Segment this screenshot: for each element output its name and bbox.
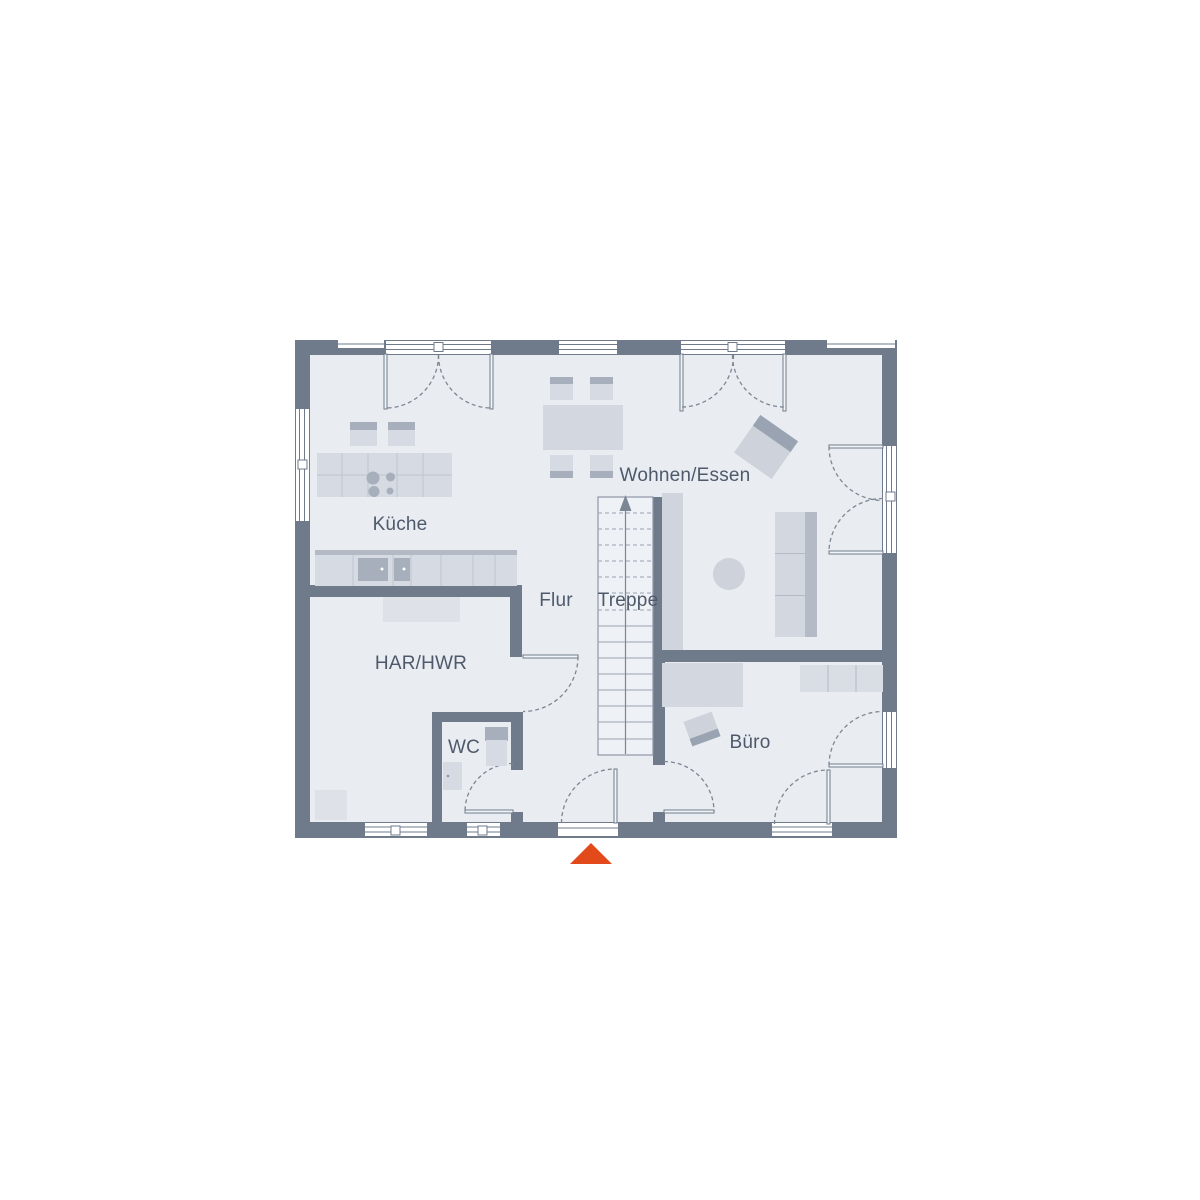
room-label-har-hwr: HAR/HWR xyxy=(375,653,467,675)
room-label-flur: Flur xyxy=(539,590,573,612)
window-handle-icon xyxy=(478,826,487,835)
har-door-leaf xyxy=(523,655,578,658)
door-leaf xyxy=(829,551,883,554)
window-handle-icon xyxy=(728,343,737,352)
door-leaf xyxy=(490,354,493,409)
wall-har-flur xyxy=(510,597,522,657)
floor-plan-drawing xyxy=(295,340,897,838)
window-wc-bottom xyxy=(467,823,500,836)
kitchen-island xyxy=(317,453,452,497)
wc-door-leaf xyxy=(465,810,513,813)
wall-wc-top xyxy=(432,712,523,722)
entrance-door-opening xyxy=(558,823,618,836)
oven xyxy=(358,558,388,581)
sofa xyxy=(775,512,817,637)
sideboard xyxy=(662,493,683,650)
window-sill-top-right xyxy=(827,340,895,348)
room-label-buero: Büro xyxy=(730,732,771,754)
terrace-door-buero-right xyxy=(883,712,896,768)
window-handle-icon xyxy=(298,460,307,469)
door-leaf xyxy=(827,770,830,824)
french-door-living-top xyxy=(680,341,786,354)
entrance-marker-icon xyxy=(570,843,612,864)
dining-table xyxy=(543,405,623,450)
staircase xyxy=(598,495,653,755)
window-kitchen-left xyxy=(296,408,309,522)
door-leaf xyxy=(829,764,883,767)
window-sill-top-left xyxy=(338,340,384,348)
door-leaf xyxy=(829,445,883,448)
room-label-wc: WC xyxy=(448,737,480,759)
buero-door-leaf xyxy=(664,810,714,813)
wc-sink xyxy=(443,762,462,790)
door-leaf xyxy=(384,354,387,409)
room-label-wohnen-essen: Wohnen/Essen xyxy=(620,465,751,487)
wall-buero-stub xyxy=(653,812,665,822)
desk xyxy=(662,663,743,707)
wall-kitchen-har xyxy=(310,585,522,597)
wall-wohnen-buero xyxy=(653,650,897,662)
wc-toilet xyxy=(485,727,508,766)
terrace-door-buero-bottom xyxy=(772,823,832,836)
office-cabinet xyxy=(800,665,883,692)
cooktop-burner xyxy=(387,488,394,495)
cooktop-burner xyxy=(369,486,380,497)
door-leaf xyxy=(680,354,683,411)
window-handle-icon xyxy=(434,343,443,352)
window-top-center xyxy=(558,341,618,354)
window-har-bottom xyxy=(365,823,427,836)
window-handle-icon xyxy=(391,826,400,835)
har-storage-box xyxy=(315,790,347,820)
side-table xyxy=(713,558,745,590)
french-door-living-right xyxy=(883,445,896,554)
french-door-kitchen-top xyxy=(385,341,492,354)
entrance-door-leaf xyxy=(614,769,617,823)
cooktop-burner xyxy=(386,473,395,482)
kitchen-counter xyxy=(315,550,517,586)
har-shelf xyxy=(383,597,460,622)
wall-wc-left xyxy=(432,712,442,822)
room-label-kueche: Küche xyxy=(373,514,428,536)
window-handle-icon xyxy=(886,492,895,501)
room-label-treppe: Treppe xyxy=(598,590,659,612)
floor-plan: Küche Wohnen/Essen Flur Treppe HAR/HWR W… xyxy=(295,340,897,838)
cooktop-burner xyxy=(367,472,380,485)
dishwasher xyxy=(394,558,410,581)
door-leaf xyxy=(783,354,786,411)
wall-wc-right xyxy=(511,712,523,770)
